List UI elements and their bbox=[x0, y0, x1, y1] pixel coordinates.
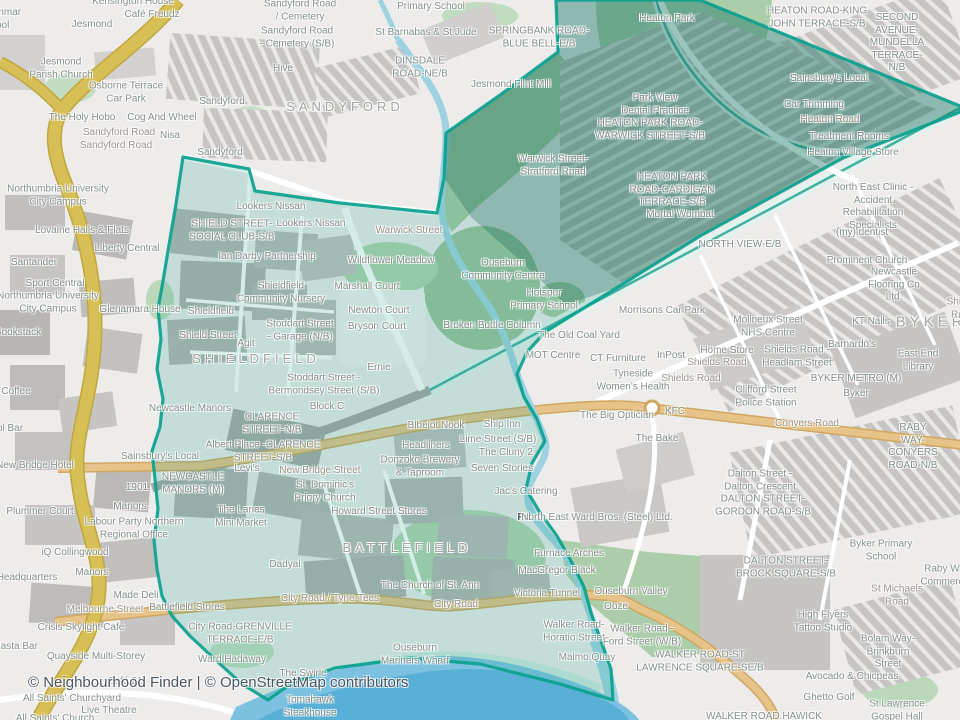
map-canvas bbox=[0, 0, 960, 720]
roundabout bbox=[645, 401, 659, 415]
map-attribution: © Neighbourhood Finder | © OpenStreetMap… bbox=[28, 674, 408, 691]
map-viewport[interactable]: Kensington HouseCafé FreudzJesmondGramma… bbox=[0, 0, 960, 720]
